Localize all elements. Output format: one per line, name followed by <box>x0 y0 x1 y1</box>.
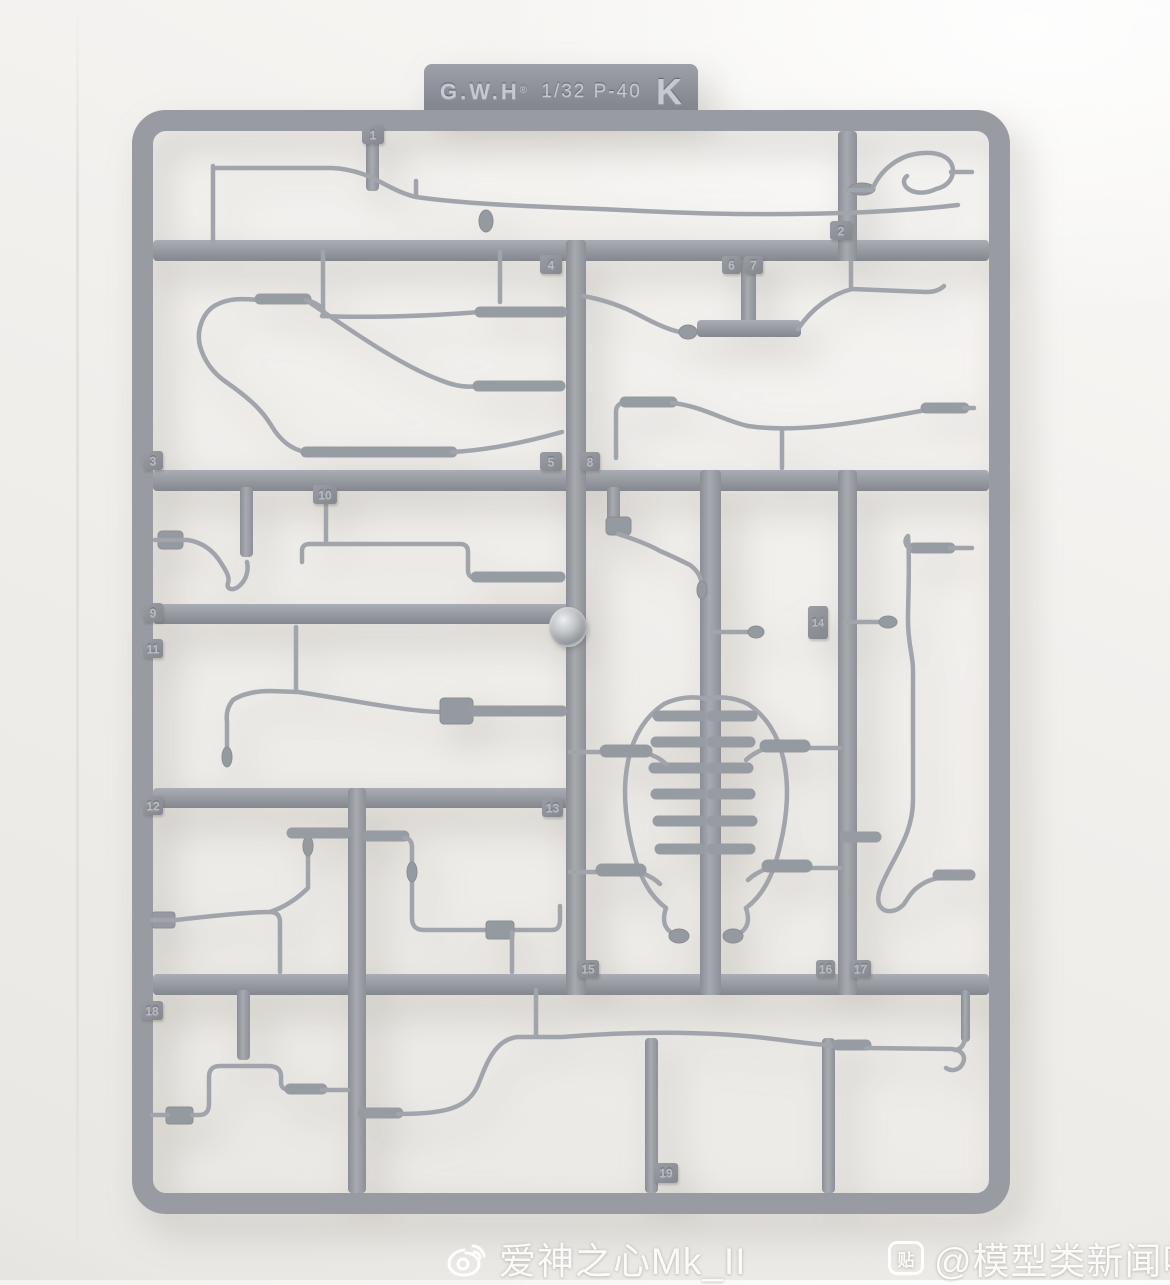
tieba-icon: 贴 <box>888 1241 924 1275</box>
part-tag-11: 11 <box>143 639 163 658</box>
part-tag-15: 15 <box>577 960 599 978</box>
photo-of-model-kit-sprue: { "header_tab": { "brand": "G.W.H", "mar… <box>0 0 1170 1280</box>
part-tag-19: 19 <box>654 1163 678 1183</box>
sprue-runner-k: G.W.H® 1/32 P-40 K <box>0 0 1170 1280</box>
part-tag-6: 6 <box>722 256 741 274</box>
plastic-pipe-parts <box>0 0 1170 1280</box>
watermark-left-text: 爱神之心Mk_II <box>499 1231 746 1285</box>
part-tag-17: 17 <box>850 960 871 978</box>
part-tag-14: 14 <box>808 606 828 639</box>
weibo-icon <box>445 1238 489 1278</box>
shiny-gate-blob <box>549 607 587 647</box>
part-tag-4: 4 <box>540 255 562 274</box>
tieba-badge-glyph: 贴 <box>898 1246 915 1271</box>
part-tag-12: 12 <box>143 796 163 815</box>
part-tag-16: 16 <box>816 960 835 978</box>
watermark-left: 爱神之心Mk_II <box>445 1231 746 1285</box>
part-tag-3: 3 <box>143 451 163 470</box>
part-tag-8: 8 <box>580 452 600 471</box>
part-tag-2: 2 <box>830 221 852 240</box>
watermark-right: 贴 @模型类新闻吧 <box>888 1231 1170 1285</box>
part-tag-1: 1 <box>362 125 384 144</box>
part-tag-10: 10 <box>313 485 337 504</box>
watermark-right-text: @模型类新闻吧 <box>934 1231 1170 1285</box>
part-tag-13: 13 <box>542 798 563 817</box>
part-tag-5: 5 <box>540 452 562 471</box>
part-tag-18: 18 <box>141 1001 163 1020</box>
part-tag-9: 9 <box>143 603 163 622</box>
part-tag-7: 7 <box>744 256 763 274</box>
